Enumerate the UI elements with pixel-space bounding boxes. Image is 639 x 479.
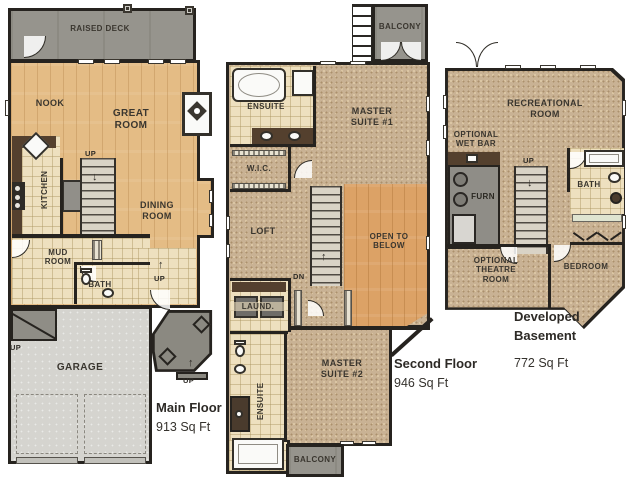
room-label-great-room: GREAT ROOM <box>100 108 162 132</box>
appliance-icon <box>452 214 476 244</box>
toilet-icon <box>608 172 621 183</box>
stove-burner-icon <box>15 195 20 200</box>
wall-segment <box>570 242 624 245</box>
room-label-optional-wet-bar: OPTIONAL WET BAR <box>448 130 504 149</box>
window-icon <box>148 59 164 64</box>
wall-segment <box>446 244 550 247</box>
window-icon <box>443 125 447 139</box>
room-label-ensuite2: ENSUITE <box>256 372 270 430</box>
room-label-master-suite-1: MASTER SUITE #1 <box>338 106 406 127</box>
window-icon <box>5 100 9 116</box>
room-label-optional-theatre-room: OPTIONAL THEATRE ROOM <box>462 256 530 284</box>
basement-title: Developed Basement <box>514 308 600 346</box>
open-to-below-area <box>344 184 427 328</box>
window-icon <box>350 61 366 65</box>
sink-icon <box>466 154 478 163</box>
room-label-balcony-lower: BALCONY <box>287 455 343 464</box>
porch-marker-up: UP <box>183 376 194 385</box>
wall-segment <box>230 189 291 192</box>
window-icon <box>505 65 521 69</box>
window-icon <box>209 214 213 227</box>
room-label-recreational-room: RECREATIONAL ROOM <box>492 98 598 119</box>
window-icon <box>426 140 430 156</box>
room-label-bedroom: BEDROOM <box>554 262 618 271</box>
furnace-icon <box>453 172 468 187</box>
sink-icon <box>102 288 114 298</box>
sink-icon <box>288 131 301 141</box>
tub-icon <box>589 154 619 163</box>
main-stairs <box>80 158 116 244</box>
sink-icon <box>610 192 622 204</box>
closet-shelf <box>344 290 352 326</box>
wall-segment <box>230 331 288 334</box>
toilet-icon <box>235 345 245 357</box>
fireplace-icon <box>194 108 200 114</box>
down-arrow-icon: ↓ <box>527 178 533 189</box>
dining-bump <box>197 178 214 238</box>
window-icon <box>104 59 120 64</box>
basement-area: 772 Sq Ft <box>514 356 594 370</box>
closet-shelf <box>92 240 102 260</box>
closet-shelf <box>572 214 622 222</box>
entry-marker-up: UP <box>154 274 165 283</box>
laundry-counter <box>232 282 286 292</box>
room-label-raised-deck: RAISED DECK <box>30 24 170 33</box>
garage-door <box>16 457 78 464</box>
wall-segment <box>313 66 316 146</box>
closet-shelf <box>232 150 286 156</box>
window-icon <box>426 96 430 112</box>
sink-icon <box>234 364 246 374</box>
window-icon <box>170 59 186 64</box>
room-label-kitchen: KITCHEN <box>40 158 54 222</box>
window-icon <box>580 65 596 69</box>
wall-segment <box>284 334 287 442</box>
main-floor-title: Main Floor <box>156 399 236 418</box>
up-arrow-icon: ↑ <box>188 358 194 369</box>
landing-marker-up: UP <box>10 343 21 352</box>
window-icon <box>226 216 230 230</box>
shower-drain-icon <box>235 410 243 418</box>
window-icon <box>78 59 94 64</box>
wall-segment <box>548 244 551 308</box>
wall-segment <box>74 262 77 304</box>
down-arrow-icon: ↓ <box>92 172 98 183</box>
shower-icon <box>292 70 314 96</box>
stair-marker-up: UP <box>85 149 96 158</box>
stair-marker-dn: DN <box>293 272 304 281</box>
balcony-stairs <box>352 4 372 62</box>
second-floor-title: Second Floor <box>394 355 484 374</box>
up-arrow-icon: ↑ <box>321 252 327 263</box>
wall-segment <box>288 278 291 332</box>
garage-door <box>84 457 146 464</box>
deck-post-icon <box>123 4 132 13</box>
room-label-wic: W.I.C. <box>236 164 282 173</box>
room-label-ensuite1: ENSUITE <box>236 102 296 111</box>
window-icon <box>362 441 376 445</box>
room-label-loft: LOFT <box>238 226 288 237</box>
french-door-arc-icon <box>477 42 498 67</box>
window-icon <box>540 65 556 69</box>
room-label-basement-bath: BATH <box>572 180 606 189</box>
room-label-furnace: FURN <box>466 192 500 201</box>
room-label-open-to-below: OPEN TO BELOW <box>364 232 414 251</box>
room-label-bath: BATH <box>82 280 118 289</box>
stove-burner-icon <box>15 203 20 208</box>
closet-shelf <box>294 290 302 326</box>
sink-icon <box>260 131 273 141</box>
room-label-master-suite-2: MASTER SUITE #2 <box>308 358 376 379</box>
second-floor-area: 946 Sq Ft <box>394 376 474 390</box>
floor-plan-canvas: RAISED DECK KITCHEN UP ↓ DN NOOK GREAT R… <box>0 0 639 479</box>
french-door-arc-icon <box>456 42 477 67</box>
room-label-laundry: LAUND. <box>230 302 286 311</box>
room-label-balcony-upper: BALCONY <box>374 22 426 31</box>
up-arrow-icon: ↑ <box>158 260 164 271</box>
window-icon <box>443 95 447 109</box>
window-icon <box>426 236 430 250</box>
parking-stall-outline <box>16 394 78 454</box>
room-label-dining-room: DINING ROOM <box>128 200 186 221</box>
window-icon <box>622 100 626 116</box>
wall-segment <box>288 147 291 191</box>
window-icon <box>320 61 336 65</box>
window-icon <box>226 244 230 258</box>
parking-stall-outline <box>84 394 146 454</box>
tub-icon <box>238 444 278 464</box>
tub-icon <box>238 73 280 97</box>
wall-segment <box>230 278 291 281</box>
second-floor-stairs <box>310 186 342 286</box>
stair-marker-up: UP <box>523 156 534 165</box>
wall-segment <box>290 326 430 330</box>
room-label-garage: GARAGE <box>48 362 112 374</box>
wall-segment <box>230 144 316 147</box>
window-icon <box>209 190 213 203</box>
room-label-mud-room: MUD ROOM <box>36 248 80 267</box>
deck-post-icon <box>185 6 194 15</box>
stove-burner-icon <box>15 186 20 191</box>
window-icon <box>622 215 626 229</box>
wall-segment <box>60 158 63 240</box>
room-label-nook: NOOK <box>28 98 72 109</box>
main-floor-area: 913 Sq Ft <box>156 420 236 434</box>
wall-segment <box>74 262 150 265</box>
